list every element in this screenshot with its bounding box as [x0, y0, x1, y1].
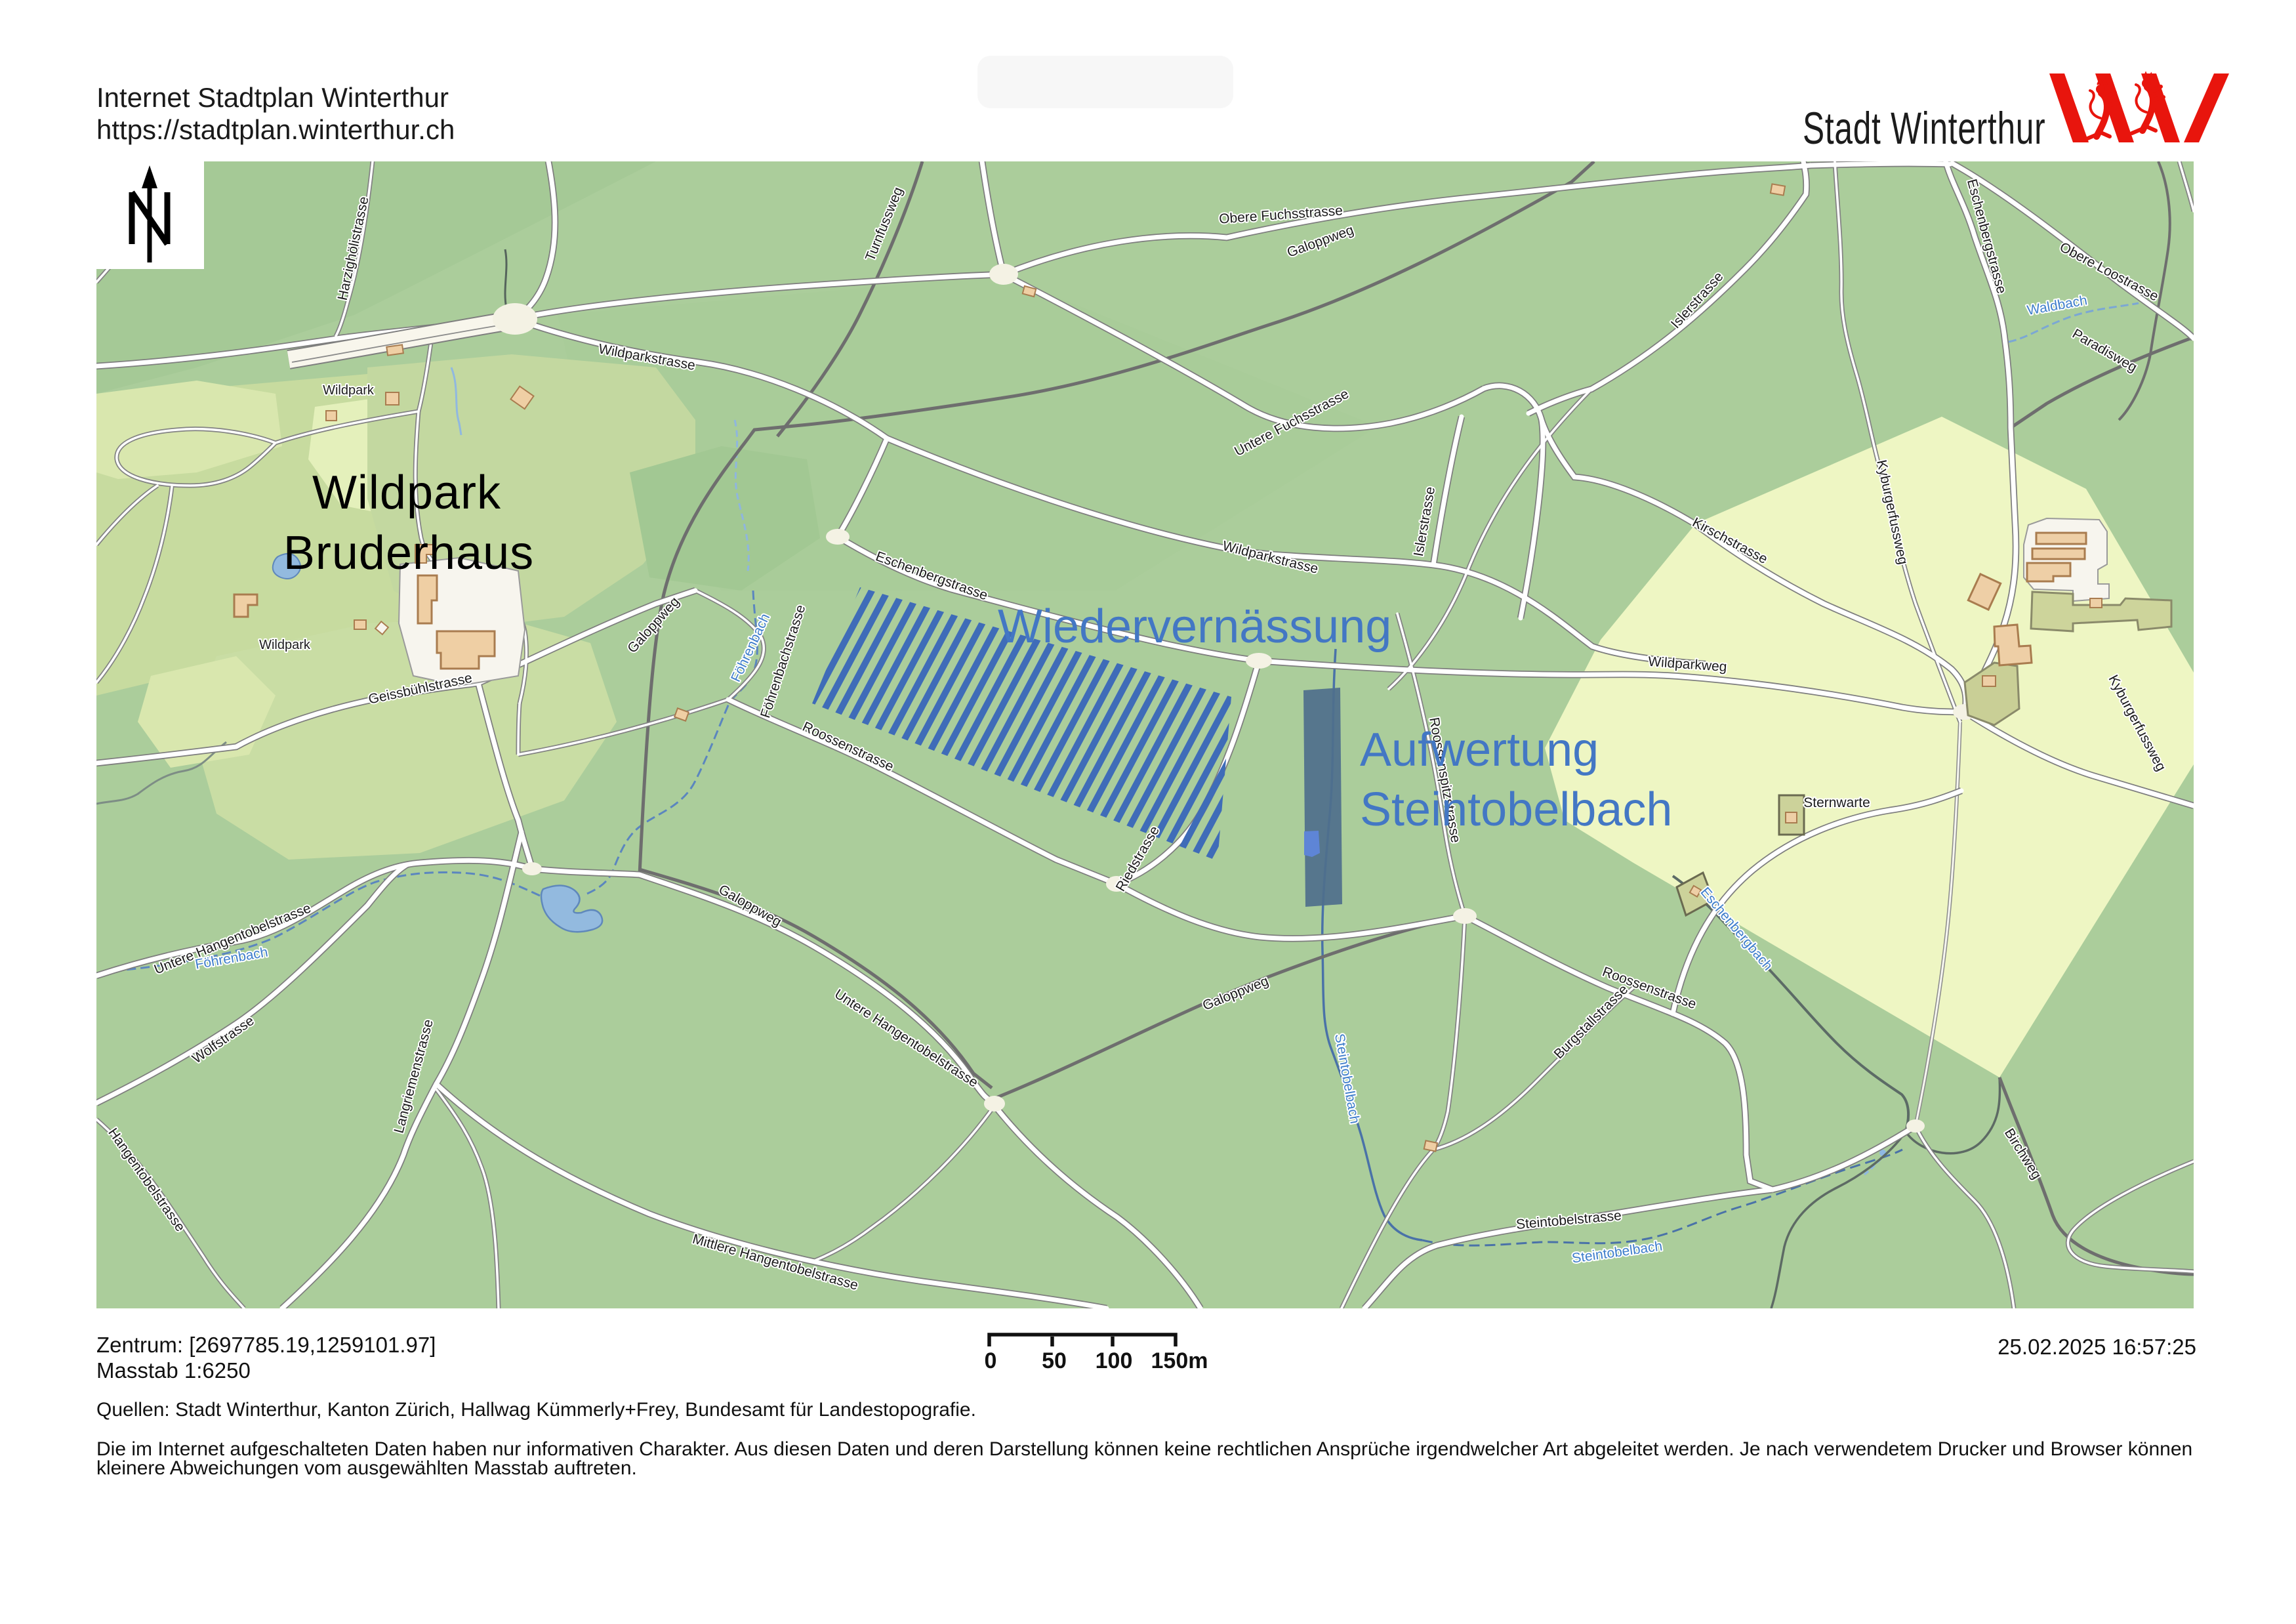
- svg-text:Wildpark: Wildpark: [312, 467, 501, 519]
- svg-text:Quellen: Stadt Winterthur, Kan: Quellen: Stadt Winterthur, Kanton Zürich…: [96, 1399, 976, 1421]
- svg-text:Sternwarte: Sternwarte: [1803, 795, 1870, 810]
- svg-text:Zentrum: [2697785.19,1259101.9: Zentrum: [2697785.19,1259101.97]: [96, 1333, 436, 1357]
- svg-text:Internet Stadtplan Winterthur: Internet Stadtplan Winterthur: [96, 82, 449, 113]
- svg-text:0: 0: [985, 1348, 997, 1373]
- svg-text:50: 50: [1042, 1348, 1067, 1373]
- svg-text:Wiedervernässung: Wiedervernässung: [998, 600, 1391, 653]
- svg-text:Stadt Winterthur: Stadt Winterthur: [1803, 103, 2045, 154]
- svg-text:150m: 150m: [1151, 1348, 1208, 1373]
- svg-text:100: 100: [1096, 1348, 1133, 1373]
- svg-text:Aufwertung: Aufwertung: [1360, 724, 1599, 776]
- svg-text:Wildpark: Wildpark: [259, 638, 311, 652]
- svg-text:Steintobelbach: Steintobelbach: [1360, 783, 1672, 836]
- svg-text:25.02.2025 16:57:25: 25.02.2025 16:57:25: [1998, 1335, 2196, 1359]
- svg-text:kleinere Abweichungen vom ausg: kleinere Abweichungen vom ausgewählten M…: [96, 1457, 637, 1479]
- svg-text:https://stadtplan.winterthur.c: https://stadtplan.winterthur.ch: [96, 114, 455, 145]
- svg-text:Masstab 1:6250: Masstab 1:6250: [96, 1358, 251, 1383]
- svg-text:Bruderhaus: Bruderhaus: [283, 527, 534, 579]
- svg-text:Wildpark: Wildpark: [323, 383, 375, 398]
